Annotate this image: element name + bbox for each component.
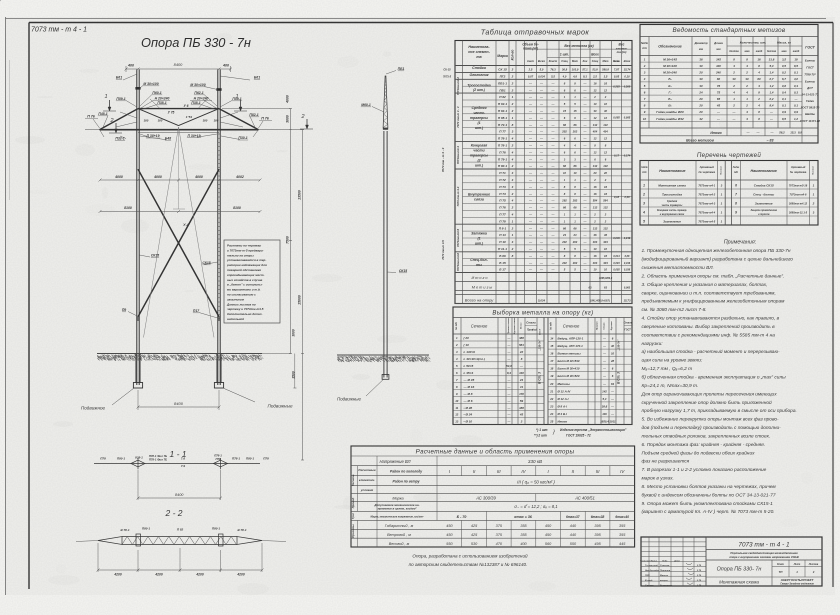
svg-text:Круглая сталь: Круглая сталь: [514, 317, 516, 334]
svg-text:584: 584: [593, 199, 598, 203]
svg-text:Ведущ. АТР-170-1: Ведущ. АТР-170-1: [558, 344, 584, 348]
svg-text:15,3: 15,3: [790, 131, 796, 135]
svg-text:24: 24: [519, 378, 524, 382]
svg-text:Расчетные данные и об: Расчетные данные и область применения оп…: [416, 449, 575, 456]
svg-text:1: 1: [643, 183, 645, 187]
svg-text:П 80-1: П 80-1: [498, 164, 508, 168]
svg-text:170: 170: [519, 392, 524, 396]
svg-text:8,4: 8,4: [507, 371, 511, 375]
svg-text:2: 2: [745, 104, 748, 108]
svg-text:опора с внутренними связями: опора с внутренними связями напряжением …: [729, 555, 798, 559]
svg-text:П 73-1: П 73-1: [498, 123, 508, 127]
svg-text:**) 2 шт: **) 2 шт: [534, 434, 547, 438]
svg-text:36,9: 36,9: [562, 68, 568, 72]
svg-text:1,4: 1,4: [769, 71, 773, 75]
svg-text:839-1: 839-1: [135, 456, 143, 460]
svg-text:0,1: 0,1: [794, 104, 798, 108]
svg-text:25: 25: [549, 420, 554, 424]
svg-text:142: 142: [602, 389, 607, 393]
svg-text:П 72: П 72: [499, 178, 506, 182]
svg-text:240: 240: [715, 71, 721, 75]
svg-text:Средняя: Средняя: [471, 106, 486, 110]
svg-text:Опора ПБ 330 - 7н: Опора ПБ 330 - 7н: [141, 35, 251, 50]
svg-text:по авторским свидетельствам: по авторским свидетельствам №132387 и № …: [409, 562, 528, 567]
svg-text:Гайки: Гайки: [806, 99, 814, 103]
svg-text:0,1: 0,1: [794, 71, 798, 75]
svg-text:56,2: 56,2: [779, 131, 785, 135]
svg-text:7500: 7500: [286, 236, 290, 244]
svg-text:132: 132: [603, 206, 608, 210]
svg-text:—: —: [610, 389, 614, 393]
svg-text:550: 550: [446, 542, 453, 546]
svg-text:П59-1: П59-1: [232, 97, 241, 101]
svg-text:3080тм-т4.12: 3080тм-т4.12: [789, 201, 808, 205]
svg-text:ГОСТ: ГОСТ: [540, 328, 542, 335]
svg-text:2. Область применения опоры: 2. Область применения опоры см. табл. „Р…: [641, 274, 785, 280]
svg-text:63: 63: [604, 286, 607, 290]
svg-text:L 35×4: L 35×4: [464, 371, 474, 375]
svg-text:ПБ1-1: ПБ1-1: [498, 81, 507, 85]
svg-text:Портнов: Портнов: [660, 570, 671, 572]
svg-text:—: —: [602, 382, 606, 386]
svg-text:Перечень чертежей: Перечень чертежей: [697, 152, 762, 159]
svg-text:400: 400: [222, 64, 229, 68]
svg-text:66: 66: [574, 206, 577, 210]
svg-text:— Ø 16: — Ø 16: [463, 385, 475, 389]
svg-text:12: 12: [594, 116, 597, 120]
svg-text:400: 400: [520, 542, 527, 546]
svg-text:4200: 4200: [195, 573, 204, 577]
svg-text:10: 10: [604, 268, 607, 272]
svg-text:4: 4: [642, 210, 645, 214]
svg-text:М 20×240: М 20×240: [663, 71, 677, 75]
svg-text:7073тм-т4-6: 7073тм-т4-6: [790, 192, 807, 196]
svg-text:4. Стойки опор устанавливают: 4. Стойки опор устанавливаются раздельно…: [642, 315, 780, 322]
svg-text:Б61: Б61: [254, 76, 260, 80]
svg-text:Растяжки по чертежу: Растяжки по чертежу: [227, 244, 261, 248]
svg-text:6тах=37: 6тах=37: [566, 515, 580, 519]
svg-text:18: 18: [794, 57, 798, 61]
svg-text:П80-1: П80-1: [142, 527, 150, 531]
svg-text:L 50×5: L 50×5: [464, 364, 474, 368]
svg-text:Диаметр: Диаметр: [693, 41, 707, 45]
svg-text:Прокат: Прокат: [597, 321, 599, 330]
svg-text:и 7073тм-т-5 предвари-: и 7073тм-т-5 предвари-: [227, 248, 264, 252]
svg-text:Подъем средней фазы до: Подъем средней фазы до подвески обеих кр…: [642, 449, 756, 456]
svg-text:Н 20×240: Н 20×240: [155, 97, 170, 101]
svg-text:М 30×100: М 30×100: [190, 83, 205, 87]
svg-text:8,8: 8,8: [798, 131, 802, 135]
svg-text:2: 2: [745, 84, 748, 88]
svg-text:Гайки,шайбы Ø20: Гайки,шайбы Ø20: [656, 110, 684, 114]
svg-text:Итого: Итого: [558, 420, 568, 424]
svg-text:Листов: Листов: [808, 563, 819, 566]
svg-text:—: —: [732, 117, 736, 121]
svg-text:3080тм-12.1-5: 3080тм-12.1-5: [789, 210, 808, 214]
svg-text:0,2: 0,2: [782, 71, 786, 75]
svg-text:№ чертежа: № чертежа: [790, 170, 807, 174]
svg-text:12: 12: [604, 137, 607, 141]
svg-text:4: 4: [511, 199, 514, 203]
svg-text:8,4: 8,4: [769, 104, 773, 108]
svg-text:8: 8: [735, 201, 737, 205]
svg-text:57,1: 57,1: [582, 68, 588, 72]
svg-text:—: —: [507, 378, 511, 382]
svg-text:66: 66: [563, 164, 566, 168]
svg-text:П 76: П 76: [499, 206, 506, 210]
svg-text:7073тм-т4-4: 7073тм-т4-4: [456, 146, 460, 165]
svg-text:П 65-1: П 65-1: [498, 116, 508, 120]
svg-text:сверленые котлованы. Выбор: сверленые котлованы. Выбор закреплений п…: [642, 323, 776, 330]
svg-text:—: —: [732, 110, 736, 114]
svg-text:П 78: П 78: [499, 219, 506, 223]
svg-text:ДСТ: ДСТ: [806, 86, 813, 90]
svg-text:18: 18: [550, 367, 554, 371]
svg-text:132: 132: [603, 123, 608, 127]
svg-text:Северо-Западное отделение: Северо-Западное отделение: [780, 583, 814, 586]
svg-text:П 64-1: П 64-1: [498, 109, 508, 113]
svg-text:Спец: Спец: [592, 59, 599, 63]
svg-text:—: —: [610, 412, 614, 416]
svg-text:3000: 3000: [292, 329, 296, 337]
svg-text:ми вариантами и т.д.: ми вариантами и т.д.: [227, 288, 261, 292]
svg-text:36: 36: [699, 57, 703, 61]
svg-text:60: 60: [757, 77, 761, 81]
svg-text:590,8: 590,8: [602, 68, 609, 72]
svg-text:0,085: 0,085: [624, 116, 631, 120]
svg-text:—: —: [602, 337, 606, 341]
svg-text:Заземление: Заземление: [755, 201, 773, 205]
svg-text:16: 16: [604, 192, 607, 196]
svg-text:2: 2: [109, 118, 113, 124]
svg-text:Расчетные: Расчетные: [358, 468, 376, 472]
svg-text:4: 4: [745, 64, 748, 68]
svg-text:15: 15: [550, 344, 554, 348]
svg-text:0,508: 0,508: [624, 84, 631, 88]
svg-text:— Ø 6: — Ø 6: [463, 399, 473, 403]
svg-text:8100: 8100: [124, 206, 132, 210]
svg-text:4200: 4200: [236, 573, 245, 577]
svg-text:• Ø 28: • Ø 28: [464, 406, 473, 410]
svg-text:траверсы: траверсы: [470, 116, 488, 120]
svg-text:СК15: СК15: [399, 269, 407, 273]
svg-text:450: 450: [545, 533, 552, 537]
svg-text:№№: №№: [733, 165, 740, 169]
svg-text:0,003: 0,003: [613, 262, 620, 265]
svg-text:—: —: [507, 343, 511, 347]
svg-text:202: 202: [561, 261, 567, 265]
svg-text:(вариант с арматурой Кл. А-: (вариант с арматурой Кл. А-IV ) черт. № …: [642, 508, 775, 515]
svg-text:Монтажная схема: Монтажная схема: [719, 580, 759, 585]
svg-text:10: 10: [594, 102, 597, 106]
svg-text:ГОСТ 5915-70: ГОСТ 5915-70: [801, 106, 820, 110]
svg-text:—: —: [602, 352, 606, 356]
svg-text:по согласованию с: по согласованию с: [227, 293, 256, 297]
svg-text:СК15: СК15: [151, 254, 159, 258]
svg-text:15,74: 15,74: [624, 68, 631, 72]
svg-text:12: 12: [604, 150, 607, 154]
svg-text:III ( q₀ = 50 кгс/м² ): III ( q₀ = 50 кгс/м² ): [517, 480, 555, 485]
svg-text:8,5: 8,5: [794, 64, 798, 68]
svg-text:Сечение: Сечение: [471, 324, 488, 329]
svg-text:40: 40: [610, 344, 615, 348]
svg-text:132: 132: [593, 226, 598, 230]
svg-text:5,034: 5,034: [538, 298, 545, 302]
svg-text:В 78-1: В 78-1: [120, 528, 129, 532]
svg-text:10: 10: [594, 247, 597, 251]
svg-text:Болт М 42×530: Болт М 42×530: [558, 359, 580, 363]
svg-text:Стойка СК15: Стойка СК15: [754, 183, 774, 187]
svg-text:440: 440: [570, 524, 577, 528]
svg-text:П 82: П 82: [177, 528, 184, 532]
svg-text:—: —: [602, 367, 606, 371]
svg-text:12: 12: [455, 413, 459, 417]
svg-text:ГОСТ: ГОСТ: [806, 66, 814, 70]
svg-text:550: 550: [570, 542, 577, 546]
svg-text:5,4: 5,4: [603, 397, 607, 401]
svg-text:опрокидывающих мест-: опрокидывающих мест-: [227, 273, 265, 277]
svg-text:Весовой , м: Весовой , м: [389, 542, 410, 546]
svg-text:0,9: 0,9: [794, 110, 798, 114]
svg-text:Стойка: Стойка: [472, 66, 486, 70]
svg-text:20: 20: [603, 171, 607, 175]
svg-text:355: 355: [619, 533, 626, 537]
svg-text:СК 15: СК 15: [498, 68, 507, 72]
svg-text:5,5: 5,5: [551, 75, 555, 79]
svg-text:М 30×100: М 30×100: [143, 82, 158, 86]
svg-text:5,0: 5,0: [540, 68, 544, 72]
svg-text:ПБ1: ПБ1: [499, 88, 505, 92]
svg-text:П9: П9: [122, 308, 126, 312]
svg-text:300: 300: [214, 119, 219, 123]
svg-text:470: 470: [496, 542, 503, 546]
svg-text:Всякие метизы: Всякие метизы: [558, 352, 582, 356]
svg-text:шайб: шайб: [756, 50, 763, 53]
svg-text:Обозначение: Обозначение: [658, 45, 682, 49]
svg-text:30: 30: [699, 77, 703, 81]
svg-text:Длина: Длина: [713, 41, 723, 45]
svg-text:№ чертежа: № чертежа: [699, 170, 716, 174]
svg-text:13,6: 13,6: [769, 57, 775, 61]
svg-text:80: 80: [717, 77, 721, 81]
svg-text:фаз не разрешается: фаз не разрешается: [642, 459, 690, 465]
svg-text:Оголовник: Оголовник: [469, 73, 488, 77]
svg-text:20: 20: [698, 104, 703, 108]
svg-text:2: 2: [757, 97, 760, 101]
svg-text:0,049: 0,049: [613, 236, 620, 240]
svg-text:пробную нагрузку 1,7 т, прикл: пробную нагрузку 1,7 т, прикладываемую в…: [642, 408, 797, 414]
svg-text:4: 4: [511, 137, 514, 141]
svg-text:П80-1: П80-1: [246, 457, 254, 461]
svg-text:0,085: 0,085: [613, 116, 620, 120]
svg-text:• Ø 24: • Ø 24: [464, 413, 473, 417]
svg-text:28: 28: [610, 359, 615, 363]
svg-text:ГОСТ 11371-68: ГОСТ 11371-68: [800, 119, 820, 123]
svg-text:0,2: 0,2: [769, 97, 773, 101]
svg-text:7073-5: 7073-5: [443, 75, 452, 79]
svg-text:7073тм-т5-16: 7073тм-т5-16: [789, 183, 808, 187]
svg-text:202: 202: [572, 130, 578, 134]
svg-text:—: —: [507, 406, 511, 410]
svg-text:П 73: П 73: [499, 185, 506, 189]
svg-text:355: 355: [520, 524, 527, 528]
svg-text:ГОСТ: ГОСТ: [624, 329, 631, 332]
svg-text:Концевая часть травер.: Концевая часть травер.: [657, 209, 687, 212]
svg-text:У-4: У-4: [183, 223, 189, 227]
svg-text:404: 404: [602, 261, 608, 265]
svg-text:300: 300: [158, 119, 163, 123]
svg-text:132: 132: [593, 164, 598, 168]
svg-text:16: 16: [594, 185, 597, 189]
svg-text:—: —: [610, 397, 614, 401]
svg-text:Ø 8 А-I: Ø 8 А-I: [558, 404, 568, 408]
svg-text:Соколов: Соколов: [660, 565, 670, 567]
svg-text:4: 4: [745, 90, 748, 94]
svg-text:23: 23: [573, 233, 577, 237]
svg-text:330 кВ: 330 кВ: [528, 459, 542, 464]
svg-text:„330-7н”: „330-7н”: [617, 339, 621, 351]
svg-text:2: 2: [812, 201, 815, 205]
svg-text:24: 24: [549, 412, 554, 416]
svg-text:2: 2: [511, 68, 514, 72]
svg-text:Средняя: Средняя: [667, 200, 678, 203]
svg-text:12: 12: [604, 116, 607, 120]
svg-text:30: 30: [732, 77, 736, 81]
svg-text:2: 2: [511, 75, 514, 79]
svg-text:4: 4: [511, 171, 514, 175]
svg-text:16: 16: [594, 81, 597, 85]
svg-text:16: 16: [594, 254, 597, 258]
svg-text:—: —: [507, 392, 511, 396]
svg-text:часть: часть: [473, 111, 484, 115]
svg-text:1. Промежуточная одноцепная: 1. Промежуточная одноцепная железобетонн…: [642, 248, 791, 254]
svg-text:Сборн.: Сборн.: [603, 322, 606, 330]
svg-text:Нач.бригады: Нач.бригады: [645, 569, 659, 572]
svg-text:1,2: 1,2: [769, 84, 773, 88]
svg-text:В Ст. 3: В Ст. 3: [617, 372, 621, 384]
svg-text:заказчиком: заказчиком: [227, 297, 245, 301]
svg-text:Марка: Марка: [497, 54, 508, 58]
svg-text:388: 388: [519, 336, 524, 340]
svg-text:буквой с индексом обозначен: буквой с индексом обозначены болты по ОС…: [642, 491, 776, 498]
svg-text:30: 30: [699, 64, 703, 68]
svg-text:10: 10: [455, 399, 459, 403]
svg-text:М60-1: М60-1: [361, 103, 371, 107]
svg-text:0,063: 0,063: [624, 287, 631, 290]
svg-text:2: 2: [511, 102, 514, 106]
svg-text:395: 395: [594, 524, 601, 528]
svg-text:76,3: 76,3: [550, 68, 556, 72]
svg-text:Ведущ. АПР-120-1: Ведущ. АПР-120-1: [558, 337, 584, 341]
svg-text:1шт: 1шт: [527, 59, 534, 63]
svg-text:22: 22: [549, 397, 554, 401]
svg-text:8400: 8400: [175, 493, 184, 497]
svg-text:6: 6: [735, 183, 737, 187]
svg-text:*) 1 шт: *) 1 шт: [536, 428, 548, 432]
svg-text:4002: 4002: [235, 175, 244, 179]
svg-text:Опора ПБ 330- 7н: Опора ПБ 330- 7н: [717, 567, 762, 573]
svg-text:Ø 12 А-IV: Ø 12 А-IV: [558, 389, 572, 393]
svg-text:8. Место установки болтов у: 8. Место установки болтов указаны на чер…: [642, 484, 777, 490]
svg-text:22: 22: [519, 350, 524, 354]
svg-text:—: —: [794, 97, 798, 101]
svg-text:6тах=38: 6тах=38: [591, 515, 605, 519]
svg-text:9. Опора может быть укомпле: 9. Опора может быть укомплектована стойк…: [642, 500, 774, 507]
svg-text:та: та: [476, 55, 481, 59]
svg-text:1°51: 1°51: [186, 115, 193, 119]
svg-text:66: 66: [574, 164, 577, 168]
svg-text:П82-1: П82-1: [249, 113, 258, 117]
svg-text:П59-1: П59-1: [116, 97, 125, 101]
svg-text:6тах=40: 6тах=40: [615, 515, 629, 519]
svg-text:16: 16: [757, 57, 761, 61]
svg-text:Бумаженко: Бумаженко: [660, 585, 673, 587]
svg-text:7073тм-т4-6: 7073тм-т4-6: [456, 253, 460, 272]
svg-text:10: 10: [604, 247, 607, 251]
svg-text:300: 300: [144, 119, 149, 123]
svg-text:5. Во избежание перекрутки: 5. Во избежание перекрутки опоры монтаж …: [642, 417, 780, 423]
svg-text:ты: ты: [476, 263, 482, 267]
svg-text:20: 20: [593, 171, 597, 175]
svg-text:292: 292: [561, 199, 567, 203]
svg-text:4200: 4200: [154, 573, 163, 577]
svg-text:19: 19: [550, 374, 554, 378]
svg-text:10: 10: [611, 352, 615, 356]
svg-text:8400: 8400: [174, 62, 183, 67]
svg-text:ГОСТ: ГОСТ: [805, 46, 815, 50]
svg-text:2: 2: [511, 164, 514, 168]
svg-text:4: 4: [511, 213, 514, 217]
svg-text:16: 16: [604, 81, 607, 85]
svg-text:Изделия треста „Энергосетьизо: Изделия треста „Энергосетьизоляция”: [560, 428, 627, 432]
svg-text:Всех: Всех: [591, 53, 599, 57]
svg-text:63: 63: [611, 382, 615, 386]
svg-text:б) облегченная стойка - време: б) облегченная стойка - временная эксплу…: [642, 374, 787, 381]
svg-text:2: 2: [511, 192, 514, 196]
svg-text:Конст: Конст: [549, 59, 558, 63]
svg-text:нительной: нительной: [227, 317, 244, 321]
svg-text:Болт М 30×520: Болт М 30×520: [558, 374, 580, 378]
svg-text:7073тм-т4-5: 7073тм-т4-5: [698, 219, 715, 223]
svg-text:202: 202: [561, 130, 567, 134]
svg-text:7073 тм-т 4-4: 7073 тм-т 4-4: [456, 186, 460, 206]
svg-text:76: 76: [717, 84, 721, 88]
svg-text:16: 16: [594, 192, 597, 196]
svg-text:Б48: Б48: [165, 136, 171, 140]
svg-text:20: 20: [698, 97, 703, 101]
svg-text:Мазель: Мазель: [660, 575, 669, 577]
svg-text:Заземление: Заземление: [663, 219, 681, 223]
svg-text:2: 2: [511, 144, 514, 148]
svg-text:П 8-1: П 8-1: [499, 226, 507, 230]
svg-text:П 30+19: П 30+19: [188, 134, 201, 138]
svg-text:450: 450: [446, 524, 453, 528]
svg-text:ГИП: ГИП: [645, 575, 650, 577]
svg-text:Б 66: Б 66: [499, 254, 506, 258]
svg-text:3,5: 3,5: [782, 57, 786, 61]
svg-text:1941,4/58,9+63(?): 1941,4/58,9+63(?): [590, 299, 610, 302]
svg-text:4000: 4000: [194, 175, 203, 179]
svg-text:П 76: П 76: [499, 150, 506, 154]
svg-text:0,48: 0,48: [624, 195, 630, 199]
svg-text:7073тм-т4-3: 7073тм-т4-3: [698, 201, 715, 205]
svg-text:7073 тм-т 4 - 3: 7073 тм-т 4 - 3: [456, 106, 460, 128]
svg-text:0,174: 0,174: [624, 153, 631, 157]
svg-text:Пролеты: Пролеты: [351, 524, 355, 538]
svg-text:132: 132: [593, 123, 598, 127]
svg-text:Ведомость стандартных ме: Ведомость стандартных метизов: [673, 27, 786, 34]
svg-text:Мет: Мет: [603, 59, 610, 63]
